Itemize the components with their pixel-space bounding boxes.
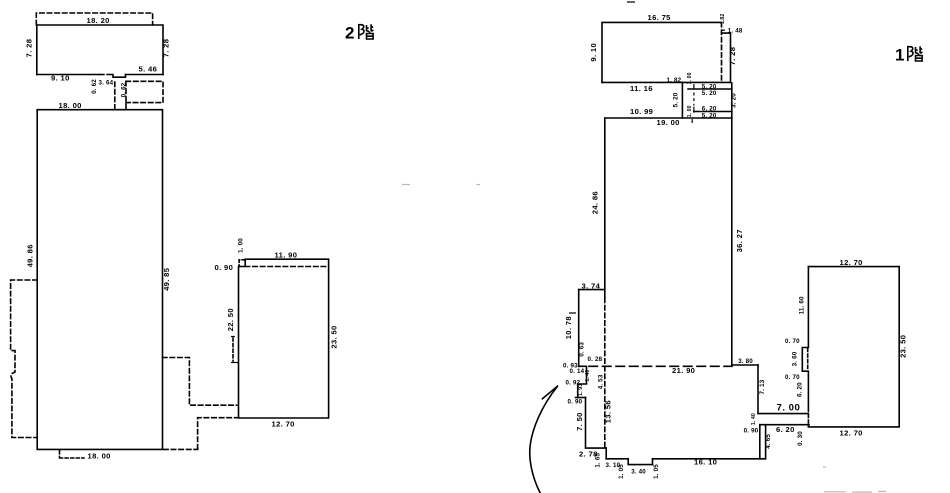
- svg-text:7. 13: 7. 13: [759, 379, 766, 394]
- svg-text:9. 10: 9. 10: [589, 43, 598, 62]
- svg-text:24. 86: 24. 86: [591, 191, 600, 214]
- svg-text:16. 75: 16. 75: [648, 13, 672, 22]
- svg-text:12. 70: 12. 70: [272, 420, 295, 429]
- svg-text:1. 00: 1. 00: [687, 72, 693, 84]
- svg-text:18. 00: 18. 00: [59, 101, 82, 110]
- svg-text:1. 00: 1. 00: [687, 105, 693, 117]
- svg-text:7. 00: 7. 00: [777, 402, 801, 413]
- svg-text:12. 70: 12. 70: [840, 258, 863, 267]
- svg-text:16. 10: 16. 10: [694, 457, 717, 466]
- svg-text:9. 10: 9. 10: [51, 74, 70, 83]
- svg-text:12. 70: 12. 70: [840, 428, 863, 437]
- svg-text:49. 86: 49. 86: [25, 244, 34, 267]
- svg-text:1. 05: 1. 05: [618, 464, 625, 479]
- svg-text:4. 53: 4. 53: [598, 374, 605, 389]
- svg-text:2: 2: [345, 24, 355, 43]
- svg-text:11. 90: 11. 90: [275, 250, 298, 259]
- svg-text:0. 70: 0. 70: [785, 374, 800, 381]
- svg-text:10. 99: 10. 99: [630, 107, 653, 116]
- svg-text:0. 70: 0. 70: [785, 338, 800, 345]
- svg-text:0. 63: 0. 63: [579, 342, 586, 357]
- svg-text:3. 60: 3. 60: [791, 351, 798, 366]
- svg-text:3. 80: 3. 80: [738, 358, 753, 365]
- svg-text:18. 00: 18. 00: [88, 452, 111, 461]
- svg-text:0. 90: 0. 90: [744, 427, 759, 434]
- svg-text:11. 16: 11. 16: [630, 84, 653, 93]
- svg-text:4. 65: 4. 65: [765, 434, 772, 449]
- svg-text:5. 20: 5. 20: [672, 92, 679, 107]
- svg-text:0. 90: 0. 90: [215, 263, 234, 272]
- svg-text:22. 50: 22. 50: [226, 308, 235, 331]
- svg-text:7. 50: 7. 50: [575, 412, 584, 431]
- svg-text:1. 40: 1. 40: [751, 413, 757, 425]
- svg-text:19. 00: 19. 00: [657, 118, 680, 127]
- svg-text:0. 14: 0. 14: [570, 368, 585, 375]
- svg-text:7. 28: 7. 28: [728, 47, 737, 66]
- svg-text:3. 40: 3. 40: [631, 468, 646, 475]
- svg-text:1. 05: 1. 05: [653, 464, 660, 479]
- svg-text:0. 62: 0. 62: [91, 79, 98, 94]
- svg-text:11. 60: 11. 60: [798, 296, 805, 314]
- svg-text:0. 30: 0. 30: [797, 431, 804, 446]
- svg-text:1.82: 1.82: [720, 14, 726, 25]
- svg-text:3. 20: 3. 20: [730, 93, 737, 108]
- svg-text:1. 93: 1. 93: [578, 384, 584, 396]
- svg-text:1. 65: 1. 65: [595, 452, 602, 467]
- svg-text:6. 20: 6. 20: [776, 425, 795, 434]
- svg-text:1: 1: [895, 46, 905, 65]
- svg-text:18. 20: 18. 20: [87, 16, 110, 25]
- svg-text:10. 78: 10. 78: [564, 316, 573, 339]
- svg-text:49. 85: 49. 85: [162, 267, 171, 291]
- svg-text:0. 90: 0. 90: [568, 399, 583, 406]
- svg-text:1. 82: 1. 82: [667, 77, 682, 84]
- svg-text:6. 20: 6. 20: [796, 382, 803, 397]
- svg-text:7. 28: 7. 28: [24, 39, 33, 58]
- svg-text:3. 74: 3. 74: [582, 281, 601, 290]
- svg-text:36. 27: 36. 27: [735, 229, 744, 252]
- svg-text:23. 50: 23. 50: [330, 325, 339, 348]
- svg-text:5. 46: 5. 46: [139, 65, 158, 74]
- svg-text:5. 20: 5. 20: [702, 90, 717, 97]
- svg-text:0. 28: 0. 28: [588, 356, 603, 363]
- svg-text:21. 90: 21. 90: [672, 366, 695, 375]
- svg-text:13. 56: 13. 56: [603, 400, 612, 423]
- svg-text:7. 28: 7. 28: [162, 39, 171, 58]
- svg-text:3. 64: 3. 64: [99, 80, 114, 87]
- svg-text:1. 40: 1. 40: [585, 370, 591, 382]
- svg-text:1. 00: 1. 00: [237, 238, 244, 253]
- svg-text:1. 48: 1. 48: [728, 28, 743, 35]
- svg-text:23. 50: 23. 50: [899, 335, 908, 358]
